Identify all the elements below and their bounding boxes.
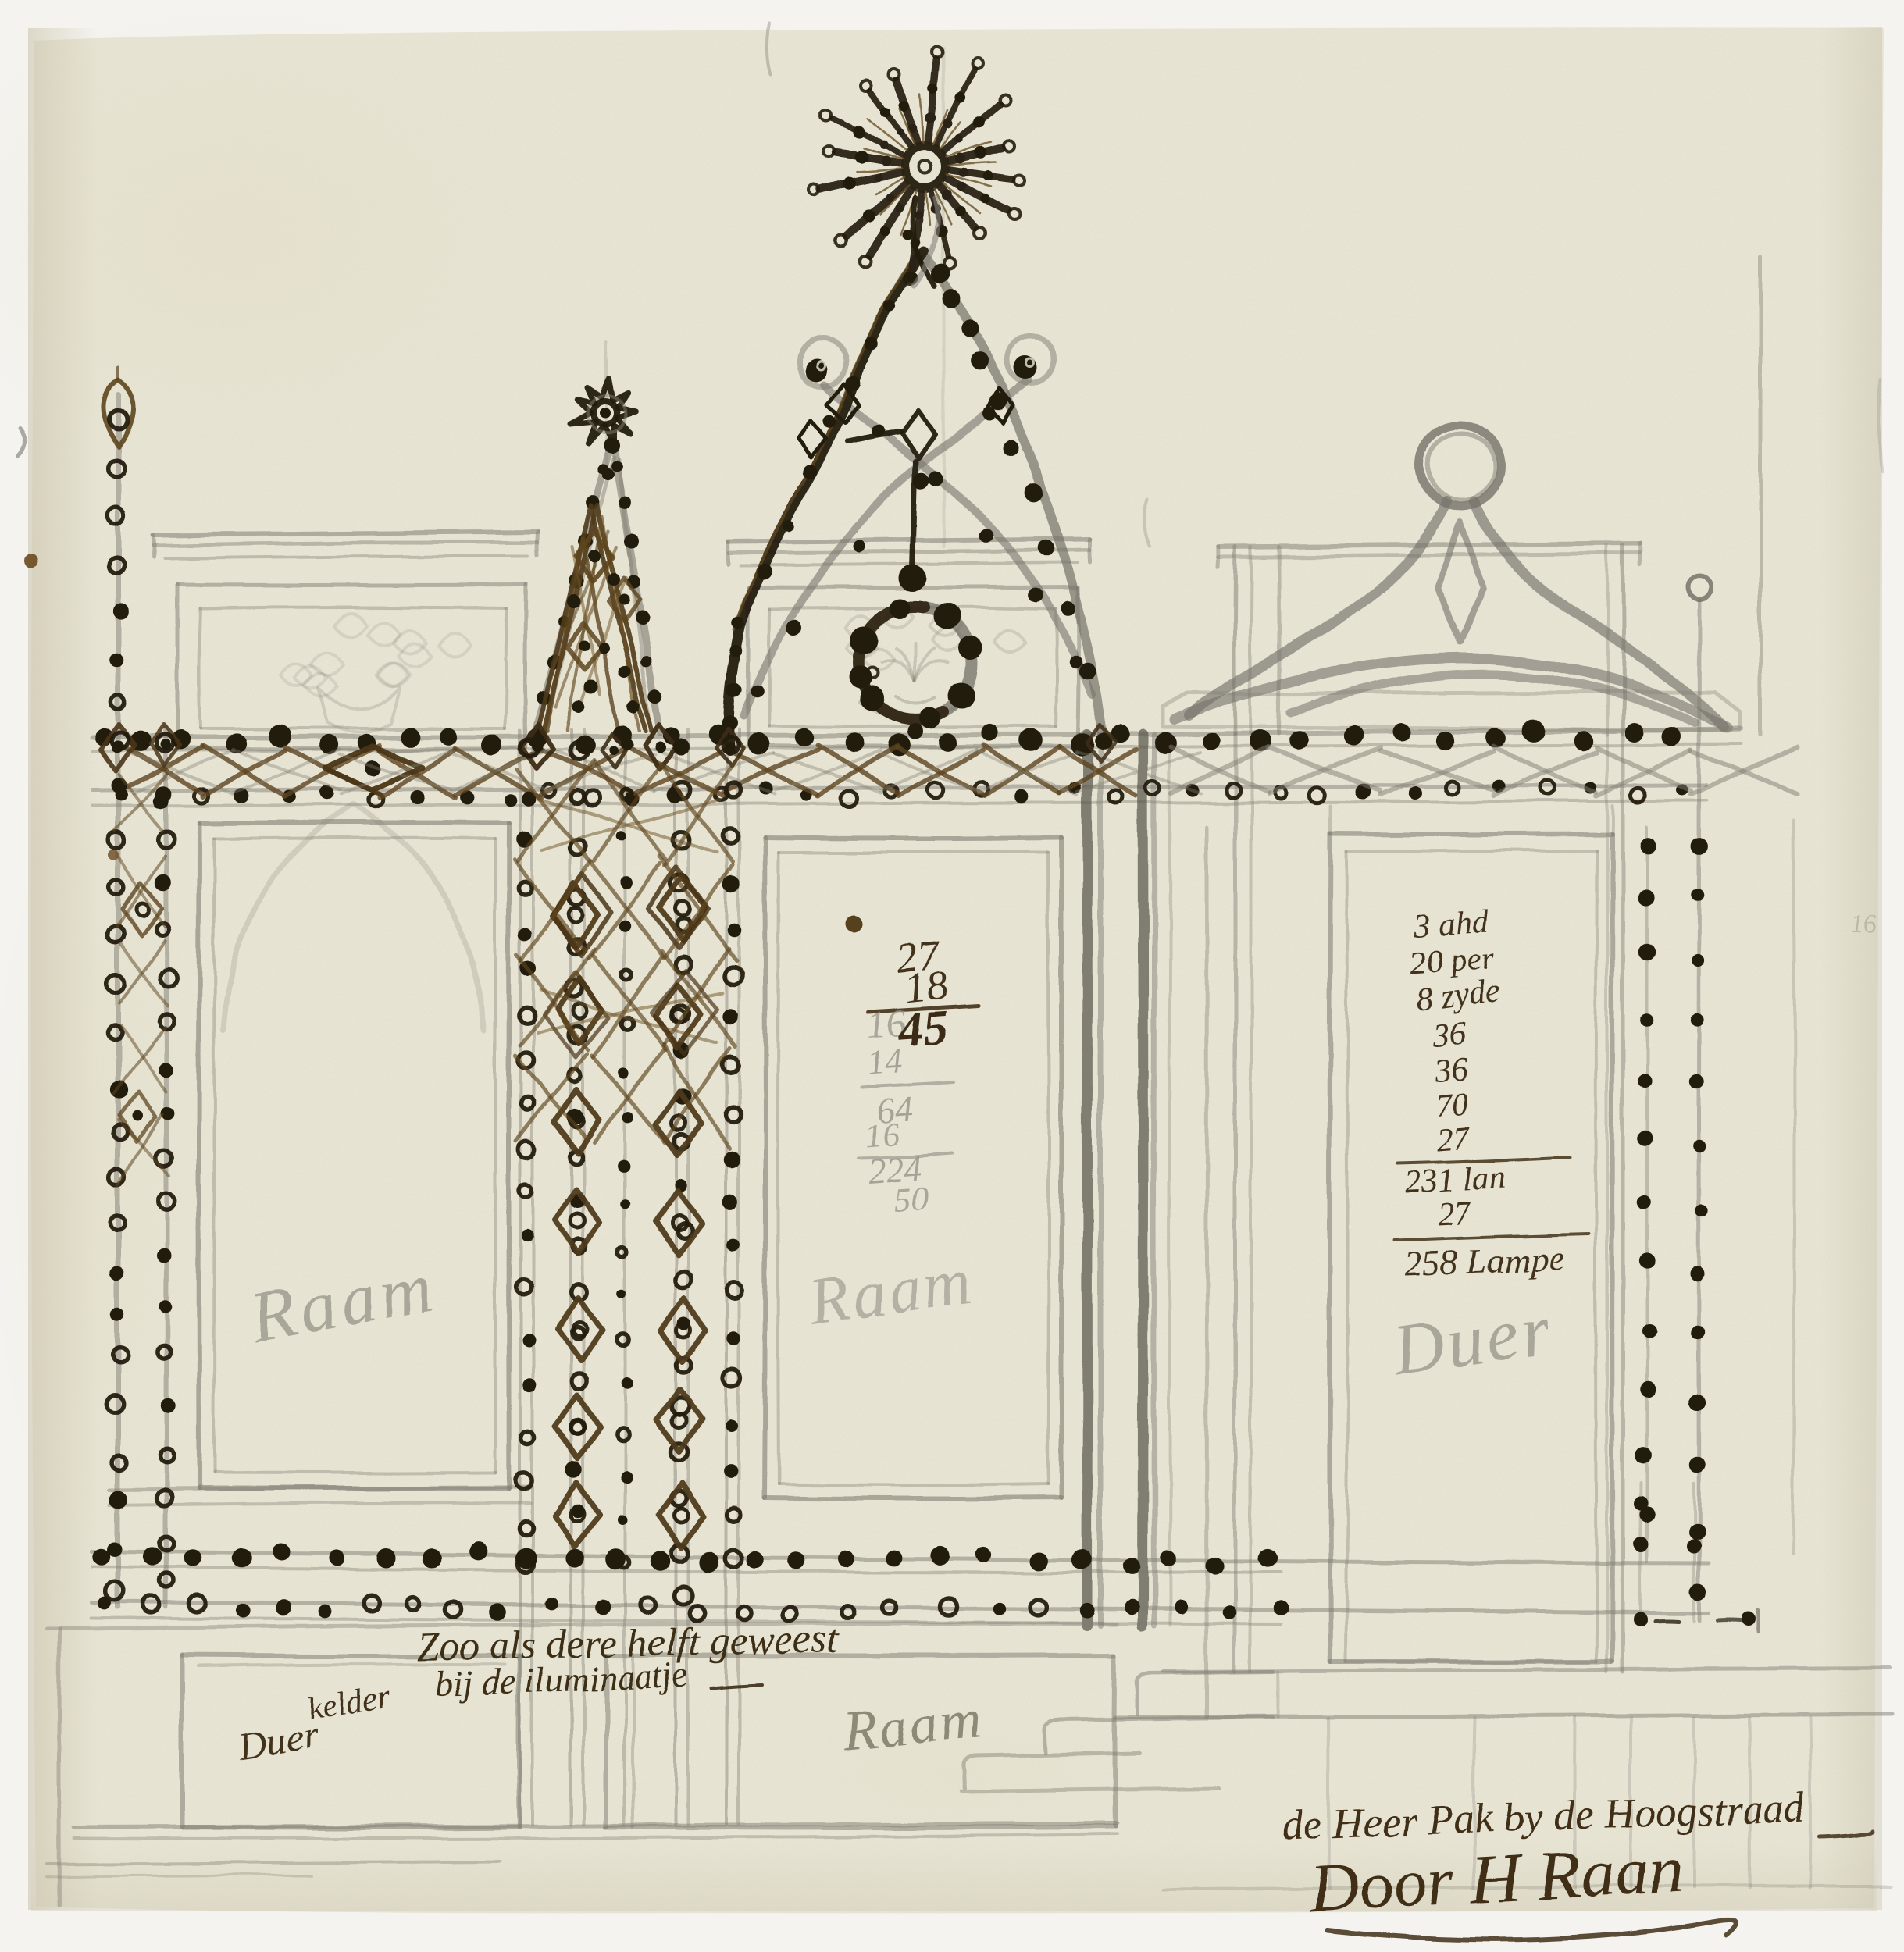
svg-text:16: 16: [1851, 910, 1877, 939]
svg-text:27: 27: [1435, 1120, 1471, 1159]
svg-text:3 ahd: 3 ahd: [1412, 903, 1489, 945]
svg-text:50: 50: [893, 1179, 929, 1220]
svg-text:70: 70: [1433, 1086, 1468, 1124]
svg-text:14: 14: [866, 1042, 903, 1082]
svg-text:36: 36: [1431, 1016, 1467, 1054]
svg-text:258 Lampe: 258 Lampe: [1403, 1238, 1565, 1284]
svg-text:45: 45: [896, 1001, 949, 1057]
svg-text:36: 36: [1432, 1052, 1468, 1090]
svg-text:27: 27: [1437, 1195, 1473, 1232]
